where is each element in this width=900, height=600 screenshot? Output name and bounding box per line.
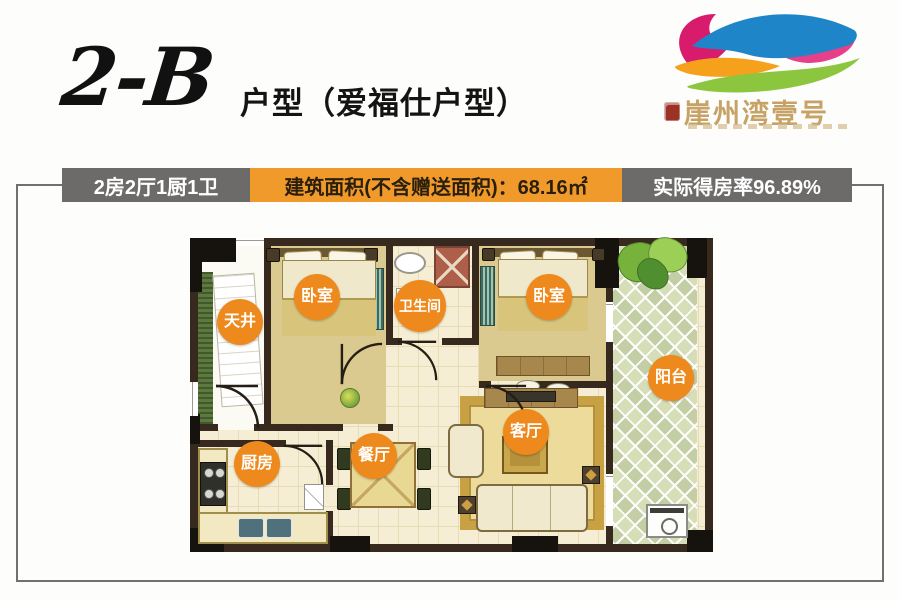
room-label-bathroom: 卫生间 bbox=[394, 280, 446, 332]
logo-swoosh-icon bbox=[658, 6, 868, 94]
potted-plant bbox=[340, 388, 360, 408]
unit-title: 户型（爱福仕户型） bbox=[240, 78, 528, 123]
banner-usable-rate: 实际得房率96.89% bbox=[622, 168, 852, 202]
sofa bbox=[476, 484, 588, 532]
wall-bedroom-bathroom bbox=[386, 246, 393, 345]
unit-code: 2-B bbox=[57, 30, 217, 124]
kitchen-sink-basin bbox=[266, 518, 292, 538]
stove bbox=[200, 462, 226, 506]
kitchen-sink-basin bbox=[238, 518, 264, 538]
wall-outer-right bbox=[705, 238, 713, 552]
window-bedroom-balcony bbox=[606, 302, 613, 342]
door-arc-bedroom-left bbox=[340, 342, 384, 386]
tv-cabinet bbox=[496, 356, 590, 376]
wall-pillar-bottom1 bbox=[330, 536, 370, 552]
door-arc-bathroom bbox=[396, 340, 438, 382]
wall-pillar-bottom2 bbox=[512, 536, 558, 552]
window-top bbox=[236, 238, 264, 246]
balcony-door-opening bbox=[606, 474, 613, 526]
floor-plan: 天井 卧室 卫生间 卧室 阳台 客厅 餐厅 厨房 bbox=[190, 238, 713, 552]
room-label-bedroom-right: 卧室 bbox=[526, 274, 572, 320]
kitchen-appliance bbox=[304, 484, 324, 510]
wall-bedroom-left-bottom bbox=[271, 424, 343, 431]
wall-kitchen-top2 bbox=[326, 440, 333, 447]
bathroom-sink bbox=[394, 252, 426, 274]
dining-chair bbox=[337, 448, 351, 470]
wall-pillar-balcony-top bbox=[595, 238, 619, 288]
wall-pillar-entry bbox=[190, 414, 200, 444]
washing-machine bbox=[646, 504, 688, 538]
brand-logo: 崖州湾壹号 bbox=[658, 6, 880, 146]
wall-corner-bottomright bbox=[687, 530, 713, 552]
banner-room-config: 2房2厅1厨1卫 bbox=[62, 168, 250, 202]
wall-corner-topright bbox=[687, 238, 707, 278]
room-label-bedroom-left: 卧室 bbox=[294, 274, 340, 320]
logo-tagline-decoration bbox=[688, 124, 848, 129]
room-label-balcony: 阳台 bbox=[648, 355, 694, 401]
stove-burner bbox=[204, 489, 214, 499]
room-label-dining-room: 餐厅 bbox=[351, 433, 397, 479]
nightstand bbox=[482, 248, 495, 261]
washer-door bbox=[661, 518, 678, 535]
page: 2-B 户型（爱福仕户型） 崖州湾壹号 2房2厅1厨1卫 建筑面积(不含赠送面积… bbox=[0, 0, 900, 600]
shower bbox=[434, 246, 470, 288]
stove-burner bbox=[215, 489, 225, 499]
armchair bbox=[448, 424, 484, 478]
window-kitchen bbox=[190, 382, 198, 416]
wall-corner-topleft2 bbox=[190, 238, 202, 292]
wall-bathroom-bedroom2 bbox=[472, 246, 479, 345]
light-well-garden-strip bbox=[198, 272, 213, 424]
nightstand bbox=[266, 248, 280, 262]
banner-built-area: 建筑面积(不含赠送面积)：68.16㎡ bbox=[250, 168, 622, 202]
stove-burner bbox=[215, 468, 225, 478]
wall-lightwell-bedroom bbox=[264, 246, 271, 430]
dining-chair bbox=[417, 488, 431, 510]
logo-seal-icon bbox=[664, 102, 680, 121]
dining-chair bbox=[417, 448, 431, 470]
wardrobe bbox=[480, 266, 495, 326]
room-label-living-room: 客厅 bbox=[503, 409, 549, 455]
stove-burner bbox=[204, 468, 214, 478]
door-arc-kitchen bbox=[282, 444, 324, 486]
dining-chair bbox=[337, 488, 351, 510]
wall-bathroom-bottom2 bbox=[442, 338, 479, 345]
room-label-light-well: 天井 bbox=[217, 299, 263, 345]
door-arc-entry bbox=[214, 384, 260, 430]
washer-control-panel bbox=[650, 508, 684, 513]
room-label-kitchen: 厨房 bbox=[234, 441, 280, 487]
wall-outer-bottom bbox=[190, 544, 713, 552]
wall-bedroom-right-bottom2 bbox=[528, 381, 613, 388]
wall-bedroom-left-bottom2 bbox=[378, 424, 393, 431]
nightstand bbox=[592, 248, 605, 261]
wall-kitchen-right bbox=[326, 447, 333, 485]
